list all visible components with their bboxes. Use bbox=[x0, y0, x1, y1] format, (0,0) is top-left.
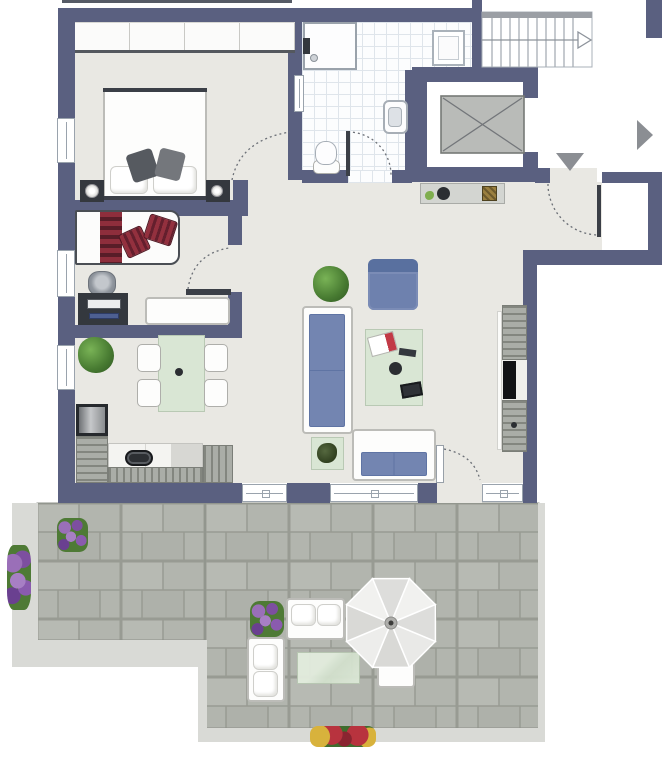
parasol bbox=[347, 579, 436, 668]
parasol-layer bbox=[0, 0, 665, 757]
floor-plan bbox=[0, 0, 665, 757]
